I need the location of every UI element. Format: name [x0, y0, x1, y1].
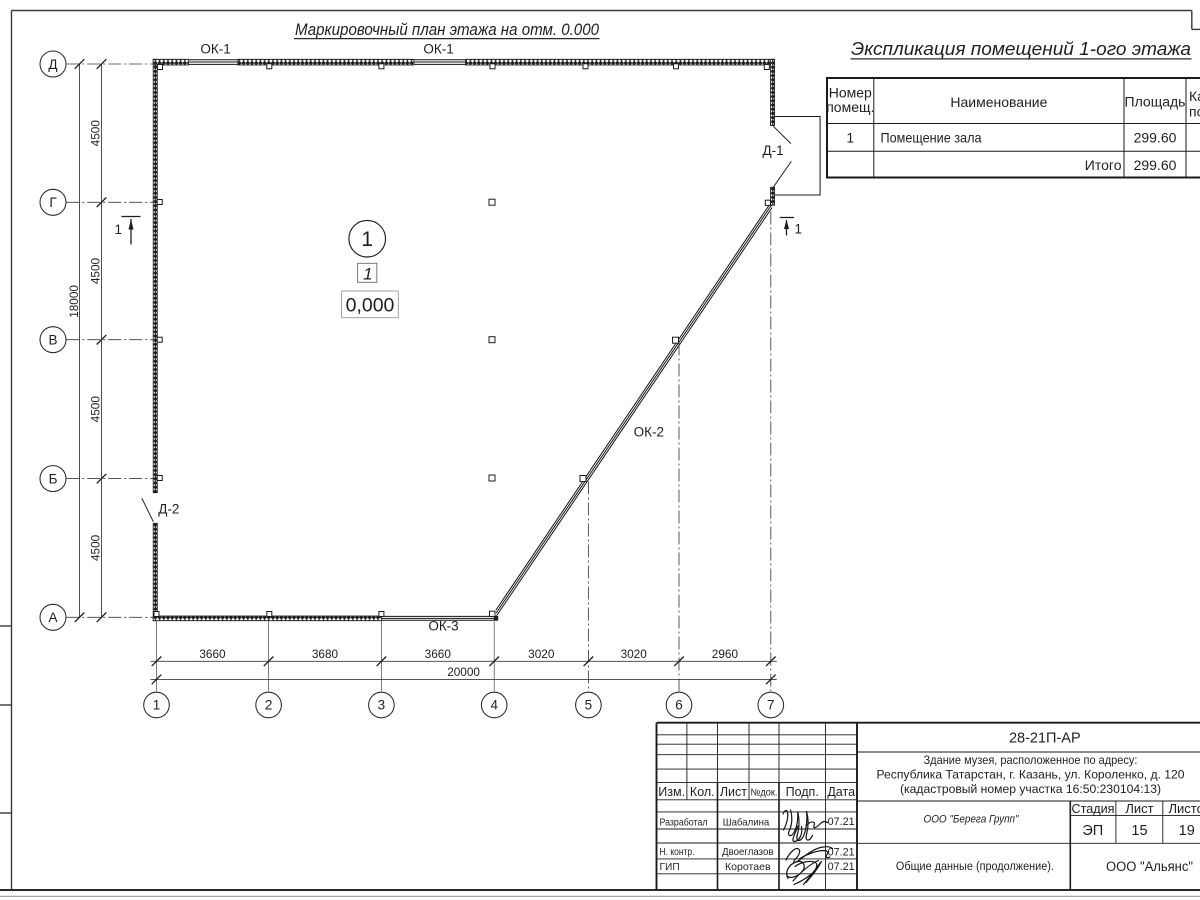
- svg-text:ОК-2: ОК-2: [634, 425, 664, 440]
- svg-text:1: 1: [363, 265, 372, 284]
- svg-text:20000: 20000: [447, 665, 480, 679]
- svg-text:(кадастровый номер участка 16:: (кадастровый номер участка 16:50:230104:…: [900, 782, 1161, 796]
- svg-text:3660: 3660: [199, 647, 226, 661]
- svg-text:№док.: №док.: [751, 787, 778, 798]
- svg-text:Кол.: Кол.: [690, 785, 715, 799]
- svg-text:0,000: 0,000: [346, 295, 395, 317]
- svg-text:Листов: Листов: [1169, 801, 1200, 816]
- svg-text:299.60: 299.60: [1134, 129, 1177, 145]
- svg-text:ОК-3: ОК-3: [428, 619, 458, 634]
- svg-text:Маркировочный план этажа на от: Маркировочный план этажа на отм. 0.000: [295, 21, 600, 39]
- svg-text:1: 1: [846, 129, 854, 145]
- svg-text:Здание музея, расположенное по: Здание музея, расположенное по адресу:: [924, 753, 1138, 767]
- svg-text:А: А: [48, 610, 57, 625]
- svg-text:Лист: Лист: [720, 785, 747, 799]
- svg-text:3020: 3020: [621, 647, 648, 661]
- svg-text:19: 19: [1179, 823, 1195, 839]
- svg-text:15: 15: [1131, 823, 1147, 839]
- svg-text:18000: 18000: [67, 285, 81, 318]
- svg-text:3680: 3680: [312, 647, 339, 661]
- svg-text:Изм.: Изм.: [658, 785, 685, 799]
- svg-text:Д-1: Д-1: [763, 143, 784, 158]
- svg-text:5: 5: [585, 697, 593, 712]
- svg-text:1: 1: [795, 222, 803, 237]
- svg-text:Помещение зала: Помещение зала: [881, 129, 982, 145]
- svg-text:Коротаев: Коротаев: [725, 862, 771, 873]
- svg-text:Общие данные (продолжение).: Общие данные (продолжение).: [896, 859, 1054, 873]
- svg-text:Д-2: Д-2: [158, 502, 179, 517]
- svg-text:Республика Татарстан, г. Казан: Республика Татарстан, г. Казань, ул. Кор…: [877, 767, 1185, 781]
- svg-text:ОК-1: ОК-1: [200, 42, 230, 57]
- svg-text:Дата: Дата: [827, 785, 855, 799]
- svg-text:7: 7: [767, 697, 775, 712]
- svg-text:Б: Б: [49, 471, 58, 486]
- svg-text:Г: Г: [49, 195, 57, 210]
- svg-text:Кат: Кат: [1189, 88, 1200, 104]
- svg-text:07.21: 07.21: [828, 816, 855, 828]
- svg-text:Экспликация помещений 1-ого эт: Экспликация помещений 1-ого этажа: [851, 39, 1191, 59]
- svg-text:Двоеглазов: Двоеглазов: [722, 847, 774, 858]
- svg-text:Наименование: Наименование: [950, 94, 1047, 110]
- svg-text:ГИП: ГИП: [660, 862, 680, 873]
- svg-text:3660: 3660: [425, 647, 452, 661]
- svg-text:В: В: [48, 333, 57, 348]
- svg-text:6: 6: [675, 697, 683, 712]
- svg-text:2960: 2960: [712, 647, 739, 661]
- svg-text:3020: 3020: [528, 647, 555, 661]
- svg-text:ОК-1: ОК-1: [423, 42, 453, 57]
- svg-text:Лист: Лист: [1125, 801, 1153, 816]
- svg-text:ООО "Альянс": ООО "Альянс": [1106, 859, 1193, 875]
- svg-text:2: 2: [265, 697, 273, 712]
- svg-text:1: 1: [115, 222, 123, 237]
- svg-text:1: 1: [361, 228, 373, 251]
- svg-text:1: 1: [153, 697, 161, 712]
- svg-text:3: 3: [378, 697, 386, 712]
- svg-text:Д: Д: [48, 57, 57, 72]
- svg-text:Разработал: Разработал: [660, 816, 708, 828]
- svg-text:4500: 4500: [88, 257, 102, 284]
- svg-text:4500: 4500: [88, 534, 102, 561]
- svg-text:ООО "Берега Групп": ООО "Берега Групп": [924, 813, 1020, 825]
- svg-text:07.21: 07.21: [828, 861, 855, 873]
- svg-text:Н. контр.: Н. контр.: [660, 847, 695, 858]
- svg-text:Площадь: Площадь: [1125, 93, 1186, 109]
- svg-text:4500: 4500: [88, 396, 102, 423]
- svg-text:4: 4: [490, 697, 498, 712]
- svg-text:28-21П-АР: 28-21П-АР: [1009, 730, 1081, 746]
- svg-text:299.60: 299.60: [1134, 157, 1177, 173]
- svg-text:4500: 4500: [88, 120, 102, 147]
- svg-text:помещ.: помещ.: [826, 99, 874, 115]
- svg-text:Итого: Итого: [1085, 157, 1122, 173]
- svg-text:Подп.: Подп.: [786, 785, 819, 799]
- svg-text:Стадия: Стадия: [1072, 801, 1115, 816]
- svg-text:пом: пом: [1189, 104, 1200, 120]
- svg-text:ЭП: ЭП: [1082, 823, 1103, 839]
- svg-text:Шабалина: Шабалина: [723, 816, 770, 828]
